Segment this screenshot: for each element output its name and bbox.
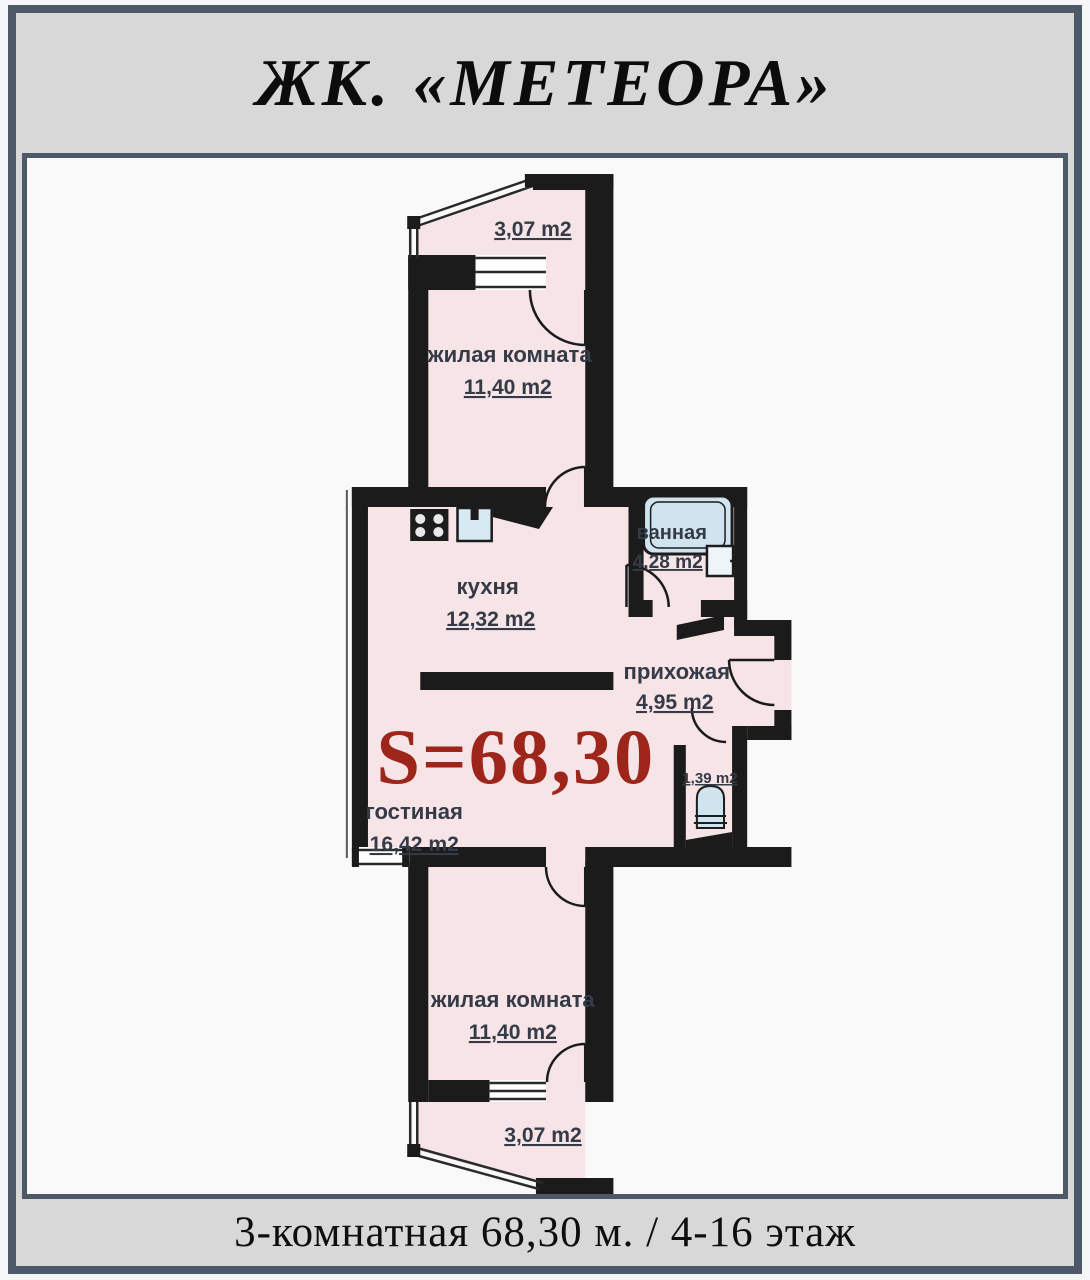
living-room-area: 16,42 m2 xyxy=(370,833,459,856)
sink-icon xyxy=(457,508,491,541)
bedroom-bottom-label: жилая комната xyxy=(430,987,596,1012)
header-band: ЖК. «МЕТЕОРА» xyxy=(16,13,1074,153)
hallway-label: прихожая xyxy=(623,659,730,684)
floorplan-area: 3,07 m2 жилая комната 11,40 m2 кухня 12,… xyxy=(22,153,1068,1199)
total-area: S=68,30 xyxy=(376,713,655,800)
bedroom-top-area: 11,40 m2 xyxy=(464,376,552,399)
bedroom-bottom-area: 11,40 m2 xyxy=(469,1021,557,1044)
hallway-area: 4,95 m2 xyxy=(636,691,713,714)
balcony-top-area: 3,07 m2 xyxy=(494,218,571,241)
bedroom-top-label: жилая комната xyxy=(427,342,593,367)
toilet-icon xyxy=(694,786,727,828)
kitchen-label: кухня xyxy=(457,574,519,599)
kitchen-area: 12,32 m2 xyxy=(446,608,535,631)
floorplan-svg: 3,07 m2 жилая комната 11,40 m2 кухня 12,… xyxy=(27,158,1063,1194)
living-room-label: гостиная xyxy=(366,799,463,824)
complex-title: ЖК. «МЕТЕОРА» xyxy=(256,45,833,122)
stove-icon xyxy=(410,509,448,541)
poster-frame: ЖК. «МЕТЕОРА» xyxy=(8,5,1082,1274)
bathroom-label: ванная xyxy=(636,522,706,544)
bathroom-area: 4,28 m2 xyxy=(633,552,703,573)
balcony-bottom-area: 3,07 m2 xyxy=(504,1124,581,1147)
wc-area: 1,39 m2 xyxy=(682,770,737,787)
apartment-summary: 3-комнатная 68,30 м. / 4-16 этаж xyxy=(234,1208,856,1257)
footer-band: 3-комнатная 68,30 м. / 4-16 этаж xyxy=(16,1199,1074,1265)
